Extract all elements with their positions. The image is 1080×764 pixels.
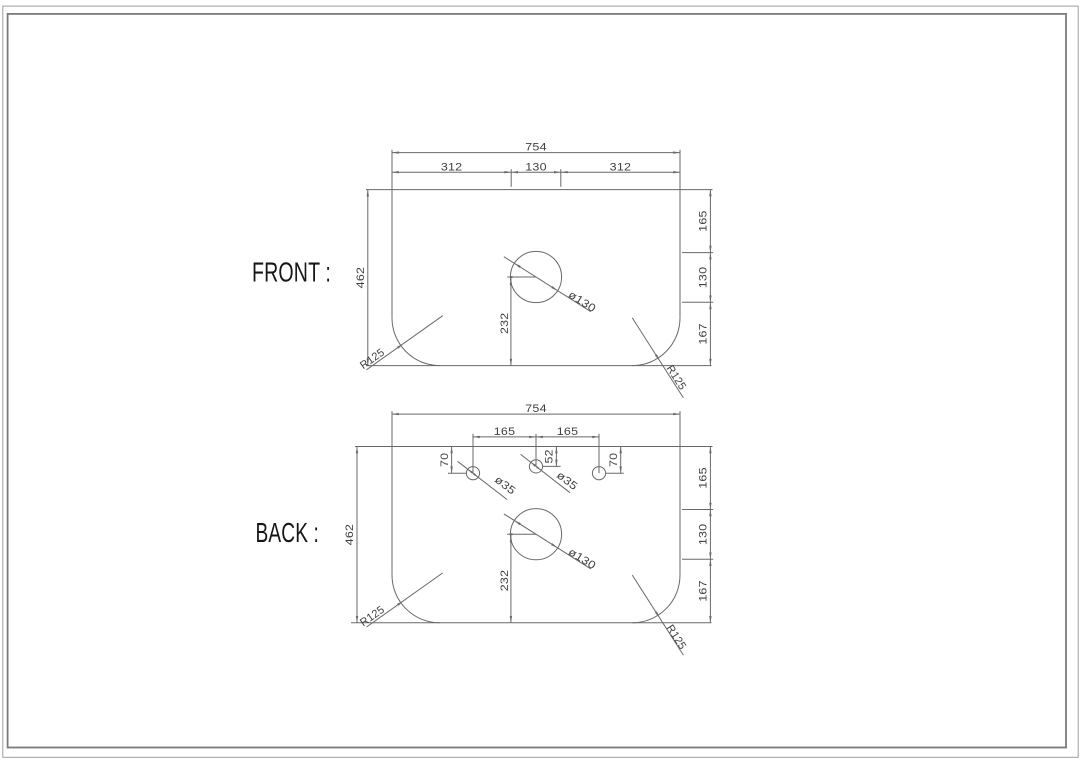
svg-text:70: 70	[608, 453, 620, 467]
svg-text:165: 165	[698, 210, 710, 232]
svg-text:167: 167	[698, 323, 710, 345]
svg-text:754: 754	[525, 142, 547, 154]
svg-text:130: 130	[698, 267, 710, 289]
svg-text:BACK :: BACK :	[256, 517, 320, 548]
svg-text:165: 165	[557, 426, 579, 438]
svg-text:312: 312	[441, 161, 463, 173]
svg-text:70: 70	[439, 453, 451, 467]
svg-text:462: 462	[355, 267, 367, 289]
svg-text:462: 462	[344, 524, 356, 546]
svg-text:232: 232	[499, 570, 511, 592]
svg-text:130: 130	[698, 524, 710, 546]
svg-text:130: 130	[525, 161, 547, 173]
svg-text:754: 754	[525, 403, 547, 415]
svg-text:312: 312	[610, 161, 632, 173]
svg-text:232: 232	[499, 313, 511, 335]
svg-text:52: 52	[544, 449, 556, 463]
svg-text:167: 167	[698, 580, 710, 602]
svg-text:FRONT :: FRONT :	[252, 256, 331, 287]
svg-text:165: 165	[494, 426, 516, 438]
svg-text:165: 165	[698, 467, 710, 489]
